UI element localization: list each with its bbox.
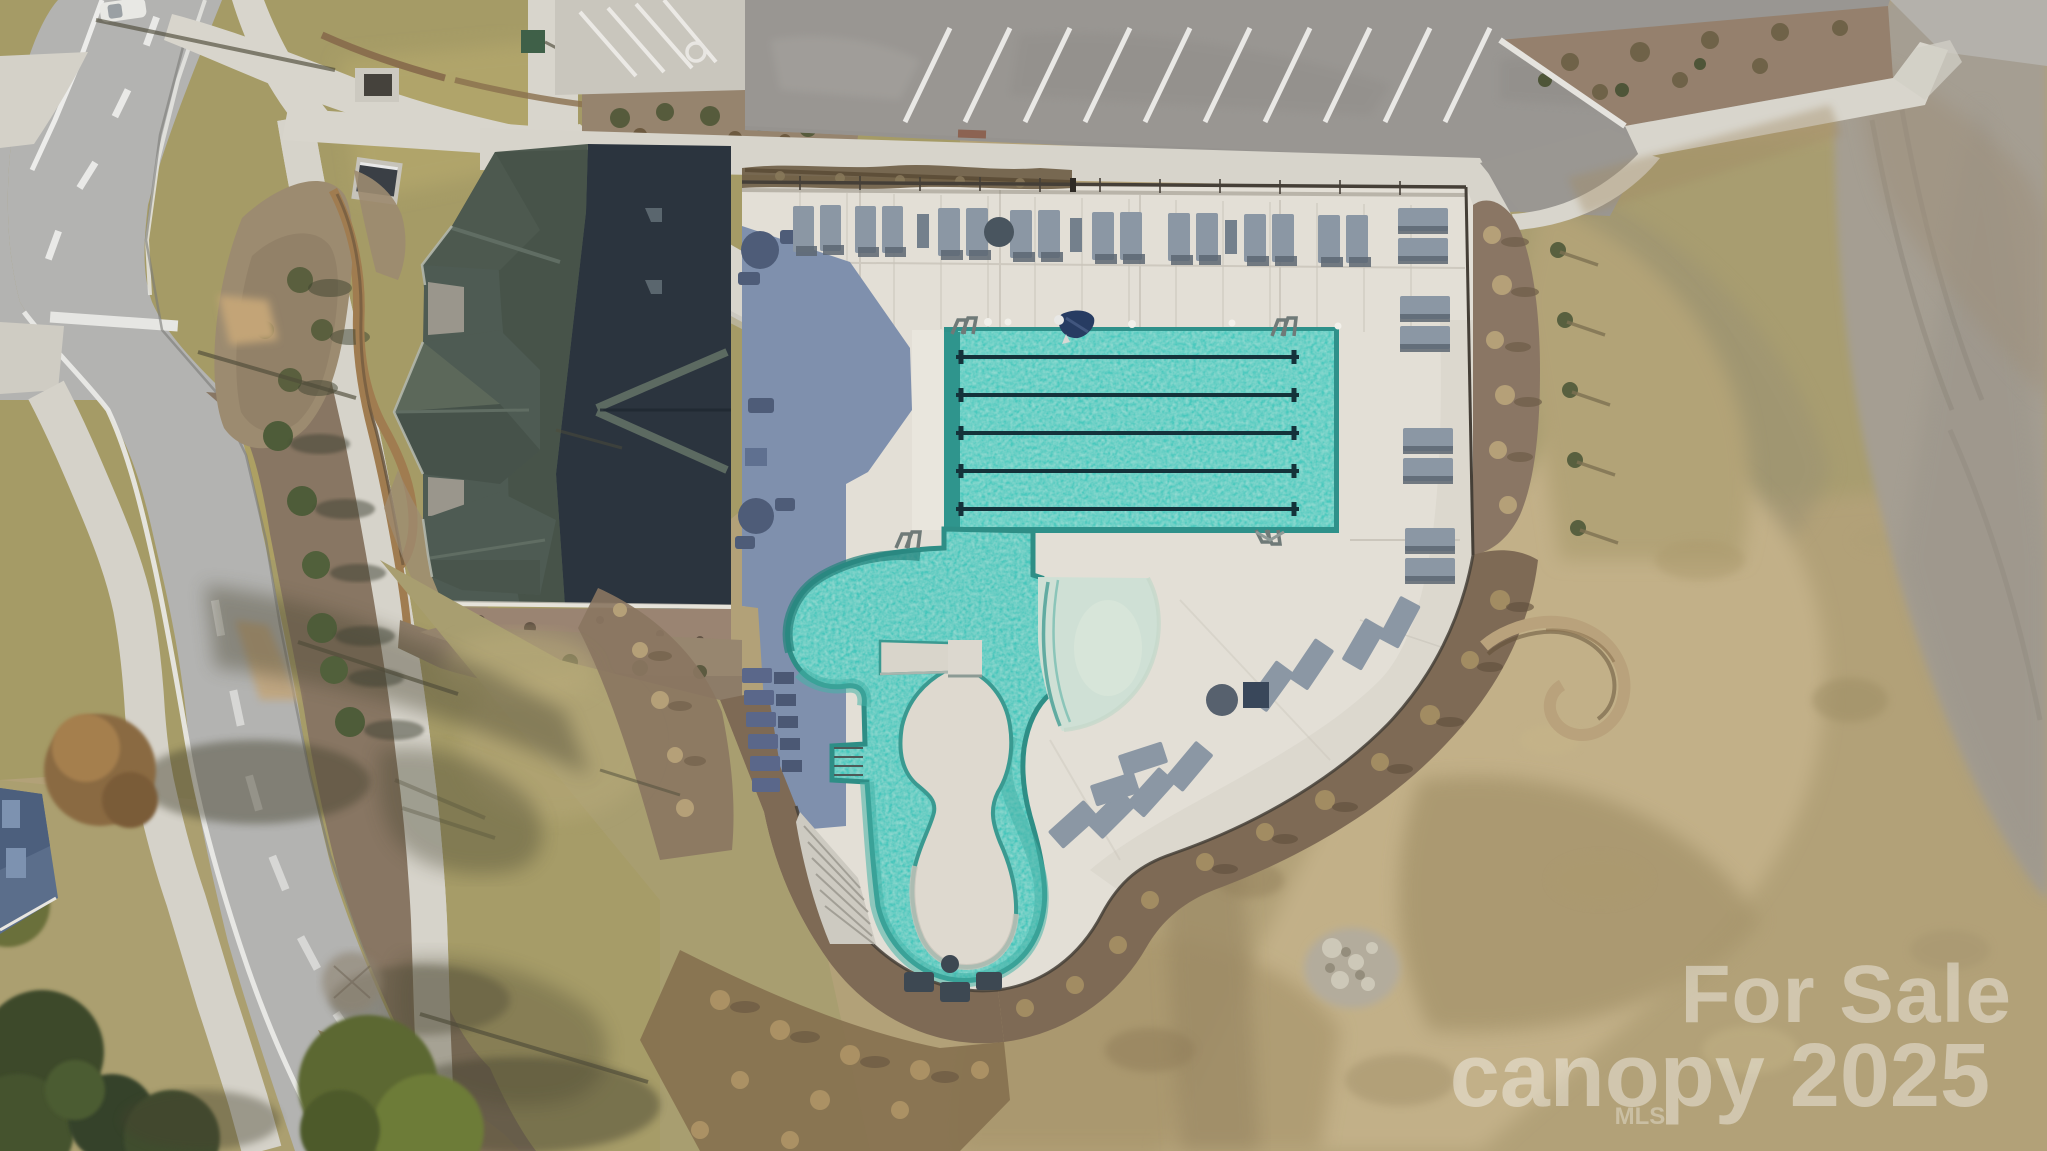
svg-text:MLS: MLS <box>1615 1103 1666 1130</box>
svg-text:canopy 2025: canopy 2025 <box>1450 1026 1990 1126</box>
